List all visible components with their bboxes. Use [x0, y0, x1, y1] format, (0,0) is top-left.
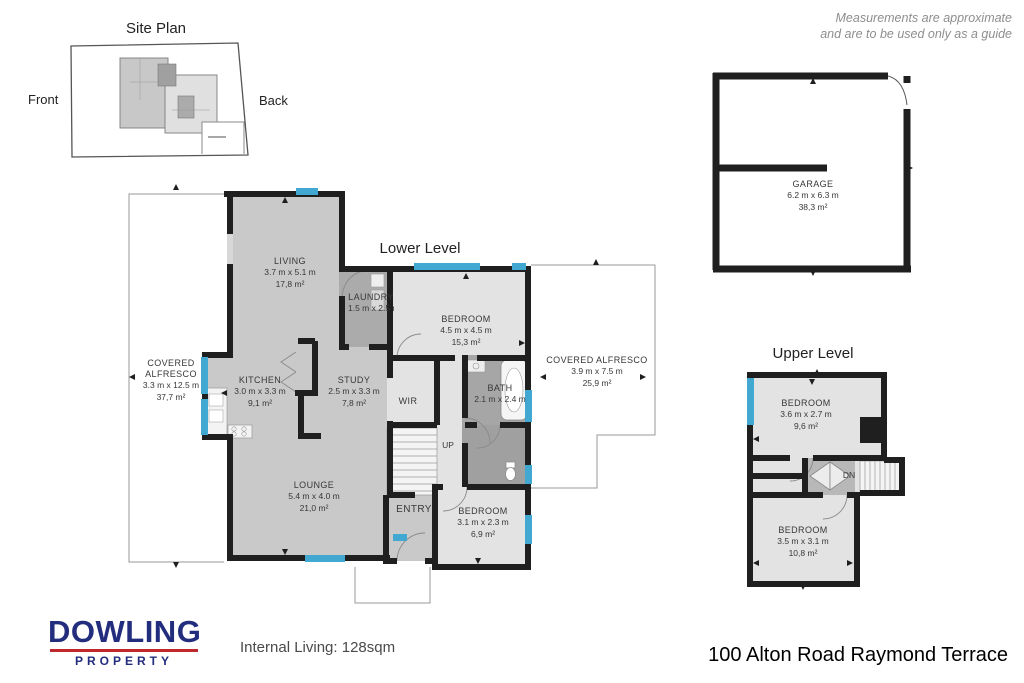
- site-plan-title: Site Plan: [126, 20, 186, 37]
- garage-name: GARAGE: [787, 179, 839, 190]
- room-label-bedroom1: BEDROOM 4.5 m x 4.5 m 15,3 m²: [440, 314, 492, 348]
- alfresco-left-dims: 3.3 m x 12.5 m: [125, 380, 217, 392]
- bedroom4-area: 10,8 m²: [777, 548, 829, 560]
- room-label-bedroom2: BEDROOM 3.1 m x 2.3 m 6,9 m²: [457, 506, 509, 540]
- garage-dims: 6.2 m x 6.3 m: [787, 190, 839, 202]
- bedroom1-name: BEDROOM: [440, 314, 492, 325]
- bedroom2-name: BEDROOM: [457, 506, 509, 517]
- garage-area: 38,3 m²: [787, 202, 839, 214]
- bedroom3-name: BEDROOM: [780, 398, 832, 409]
- bath-name: BATH: [474, 383, 526, 394]
- garage-floor: [716, 76, 907, 269]
- kitchen-dims: 3.0 m x 3.3 m: [234, 386, 286, 398]
- study-name: STUDY: [328, 375, 380, 386]
- disclaimer: Measurements are approximate and are to …: [820, 10, 1012, 42]
- upper-level-title: Upper Level: [773, 345, 854, 362]
- lounge-name: LOUNGE: [288, 480, 340, 491]
- room-label-wir: WIR: [399, 396, 418, 407]
- living-area: 17,8 m²: [264, 279, 316, 291]
- bedroom3-area: 9,6 m²: [780, 421, 832, 433]
- property-address: 100 Alton Road Raymond Terrace: [708, 644, 1008, 667]
- room-label-bedroom3: BEDROOM 3.6 m x 2.7 m 9,6 m²: [780, 398, 832, 432]
- room-label-living: LIVING 3.7 m x 5.1 m 17,8 m²: [264, 256, 316, 290]
- floorplan-page: Measurements are approximate and are to …: [0, 0, 1024, 683]
- lounge-dims: 5.4 m x 4.0 m: [288, 491, 340, 503]
- bedroom4-dims: 3.5 m x 3.1 m: [777, 536, 829, 548]
- bath-dims: 2.1 m x 2.4 m: [474, 394, 526, 406]
- room-label-kitchen: KITCHEN 3.0 m x 3.3 m 9,1 m²: [234, 375, 286, 409]
- room-label-study: STUDY 2.5 m x 3.3 m 7,8 m²: [328, 375, 380, 409]
- bedroom4-name: BEDROOM: [777, 525, 829, 536]
- study-dims: 2.5 m x 3.3 m: [328, 386, 380, 398]
- room-label-alfresco-left: COVERED ALFRESCO 3.3 m x 12.5 m 37,7 m²: [125, 358, 217, 403]
- lounge-area: 21,0 m²: [288, 503, 340, 515]
- entry-name: ENTRY: [396, 504, 432, 515]
- disclaimer-line1: Measurements are approximate: [820, 10, 1012, 26]
- lower-stairs: [387, 428, 437, 495]
- room-label-alfresco-right: COVERED ALFRESCO 3.9 m x 7.5 m 25,9 m²: [546, 355, 647, 389]
- living-left-window: [227, 234, 233, 264]
- garage-floorplan: [705, 65, 920, 280]
- bedroom1-area: 15,3 m²: [440, 337, 492, 349]
- room-label-lounge: LOUNGE 5.4 m x 4.0 m 21,0 m²: [288, 480, 340, 514]
- room-label-garage: GARAGE 6.2 m x 6.3 m 38,3 m²: [787, 179, 839, 213]
- room-label-laundry: LAUNDRY 1.5 m x 2.5 m: [348, 292, 394, 315]
- room-label-entry: ENTRY: [396, 504, 432, 515]
- logo-subtitle: PROPERTY: [48, 654, 200, 668]
- study-area: 7,8 m²: [328, 398, 380, 410]
- bedroom2-dims: 3.1 m x 2.3 m: [457, 517, 509, 529]
- upper-stairs: [860, 461, 902, 493]
- front-label: Front: [28, 92, 58, 107]
- dowling-logo: DOWLING PROPERTY: [48, 615, 200, 668]
- bedroom2-area: 6,9 m²: [457, 529, 509, 541]
- alfresco-left-area: 37,7 m²: [125, 392, 217, 404]
- site-plan-thumbnail: [60, 40, 260, 165]
- laundry-dims: 1.5 m x 2.5 m: [348, 303, 394, 315]
- room-label-bath: BATH 2.1 m x 2.4 m: [474, 383, 526, 406]
- kitchen-area: 9,1 m²: [234, 398, 286, 410]
- alfresco-right-dims: 3.9 m x 7.5 m: [546, 366, 647, 378]
- logo-brand: DOWLING: [48, 615, 200, 648]
- disclaimer-line2: and are to be used only as a guide: [820, 26, 1012, 42]
- wir-name: WIR: [399, 396, 418, 407]
- stairs-up-label: UP: [442, 440, 454, 450]
- stairs-dn-label: DN: [843, 470, 855, 480]
- alfresco-left-name: COVERED ALFRESCO: [125, 358, 217, 380]
- alfresco-right-name: COVERED ALFRESCO: [546, 355, 647, 366]
- laundry-name: LAUNDRY: [348, 292, 394, 303]
- internal-living-note: Internal Living: 128sqm: [240, 639, 395, 656]
- kitchen-name: KITCHEN: [234, 375, 286, 386]
- living-dims: 3.7 m x 5.1 m: [264, 267, 316, 279]
- bedroom1-dims: 4.5 m x 4.5 m: [440, 325, 492, 337]
- upper-window: [747, 378, 754, 425]
- bedroom3-dims: 3.6 m x 2.7 m: [780, 409, 832, 421]
- back-label: Back: [259, 93, 288, 108]
- room-label-bedroom4: BEDROOM 3.5 m x 3.1 m 10,8 m²: [777, 525, 829, 559]
- logo-red-rule: [50, 649, 198, 652]
- living-name: LIVING: [264, 256, 316, 267]
- alfresco-right-area: 25,9 m²: [546, 378, 647, 390]
